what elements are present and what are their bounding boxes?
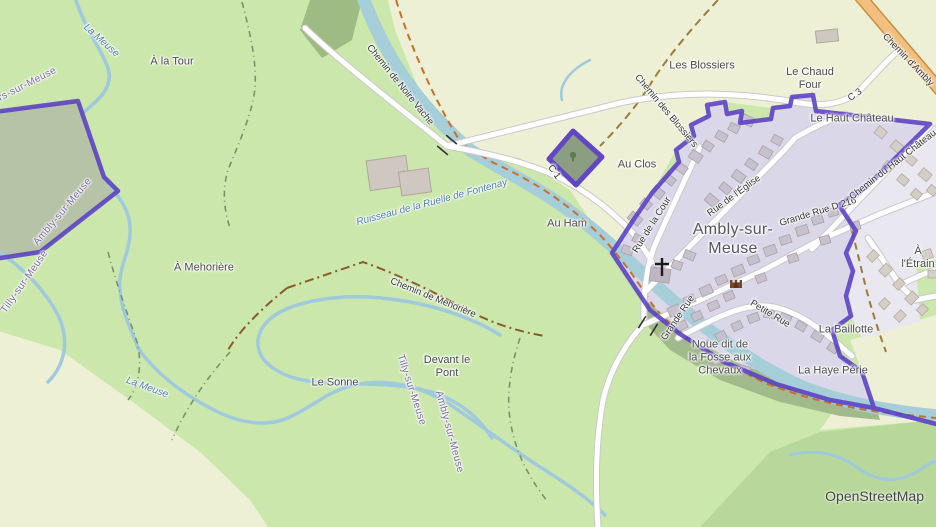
- map-graphics: [0, 0, 936, 527]
- landmark-icon: [730, 280, 742, 288]
- map-canvas[interactable]: Les Blossiers Le Chaud Four Le Haut Chât…: [0, 0, 936, 527]
- attribution-link[interactable]: OpenStreetMap: [825, 488, 924, 504]
